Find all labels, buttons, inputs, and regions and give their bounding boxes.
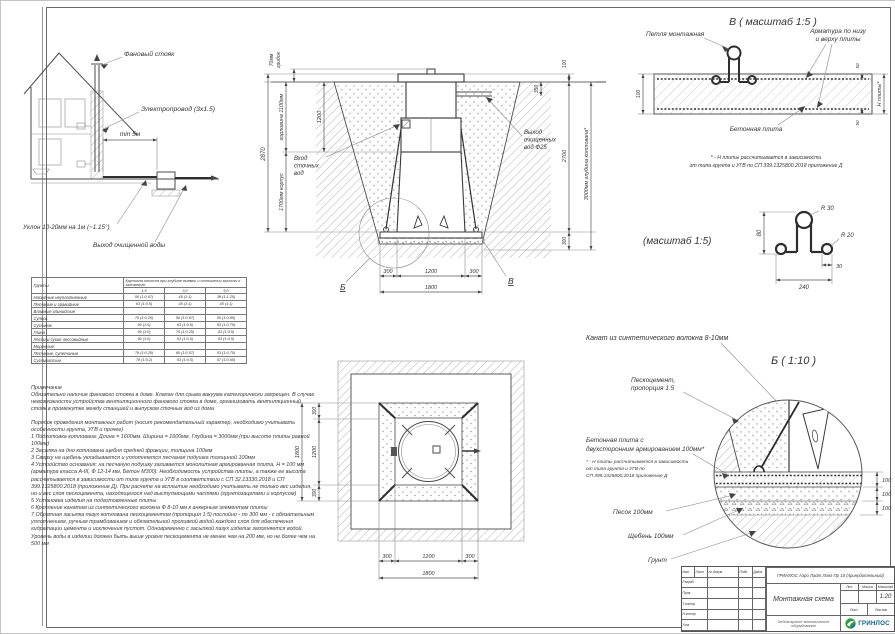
dim-h-slab: Н плиты* [877, 81, 883, 107]
dim-1200pb: 1200 [422, 554, 435, 560]
house-outline [24, 53, 137, 179]
detail-b-content [689, 396, 874, 560]
table-row: Насыпные неуплотненные56 (1:0,67)45 (1:1… [32, 294, 247, 301]
table-row: Моренные: [32, 343, 247, 350]
table-row: Лессы и сухие лессовидные90 (1:0)63 (1:0… [32, 336, 247, 343]
plan-pit [338, 361, 524, 541]
dim-300br: 300 [469, 269, 479, 275]
dim-1800b: 1800 [425, 285, 438, 291]
slab-label-1: Бетонная плита с [586, 437, 644, 444]
marker-b: Б [340, 282, 346, 292]
notes-title: Примечание [31, 385, 317, 392]
tb-sheet: Лист [840, 603, 867, 615]
slab-label: Бетонная плита [730, 126, 783, 133]
tb-mass-header: Масса [858, 583, 876, 590]
tb-h-date: Дата [753, 567, 766, 578]
brand-logo: ГРИНЛОС [840, 615, 894, 631]
detail-b-note-3: СП 399.1325800.2018 приложение Д [586, 473, 668, 479]
detail-loop-profile: (масштаб 1:5) 80 240 30 R 30 R 20 [631, 196, 894, 321]
dim-neck: горловина 1100мм [279, 93, 285, 140]
company-tagline: Чебоксарское экологическое оборудование [766, 615, 840, 631]
dim-300pb2: 300 [465, 554, 475, 560]
tb-h-izm: Изм. [682, 567, 695, 578]
document-title: Монтажная схема [766, 583, 840, 615]
dim-pit-depth: 3000мм глубина котлована* [584, 127, 590, 200]
tb-mass-value [858, 590, 876, 603]
dim-350: 350 [534, 85, 540, 94]
table-row: Суглинок90 (1:0)63 (1:0,5)53 (1:0,75) [32, 322, 247, 329]
grinlos-logo-icon [845, 618, 856, 629]
loop-label: Петля монтажная [646, 31, 705, 38]
gravel-label: Щебень 100мм [628, 532, 674, 540]
dim-body: 1700мм корпус [279, 173, 285, 211]
tb-h-sign: Подп. [739, 567, 753, 578]
detail-v-note-1: * - Н плиты рассчитывается в зависимости [711, 155, 822, 161]
scale-value: 1:20 [876, 590, 894, 603]
tb-lit-value [840, 590, 858, 603]
install-step: 1 Подготовка котлована: Длина = 1600мм. … [31, 434, 317, 448]
detail-b-note-2: от типа грунта и УГВ по [586, 466, 645, 472]
table-row: Глина90 (1:0)76 (1:0,25)63 (1:0,5) [32, 329, 247, 336]
svg-text:вод Ф25: вод Ф25 [524, 145, 547, 151]
dim-cap-2: грибок [276, 51, 282, 68]
detail-b-title: Б ( 1:10 ) [771, 355, 816, 367]
vent-arrow [94, 54, 100, 61]
detail-v-slab [654, 74, 872, 114]
tb-lit-header: Лит. [840, 583, 858, 590]
col-soil-header: Грунты [32, 278, 124, 294]
flow-arrow [211, 175, 218, 180]
soil-label: Грунт [648, 557, 667, 564]
install-step: 7 Обратная засыпка пазух котлована песко… [31, 512, 317, 548]
house-side-view: min 5м Фановый стояк Электропровод (3х1.… [19, 39, 254, 264]
vent-riser-shaft [77, 54, 103, 179]
notes-paragraph: Обязательно наличие фанового стояка в до… [31, 392, 317, 413]
cross-section-view: Б В Вход сточных вод Выход очищенных вод… [256, 36, 621, 328]
tb-h-doc: № докум. [708, 567, 739, 578]
dim-100-dv: 100 [636, 90, 642, 99]
table-row: Песчаные и гравийные63 (1:0,5)45 (1:1)45… [32, 301, 247, 308]
table-row: Супесь76 (1:0,25)56 (1:0,67)50 (1:0,85) [32, 315, 247, 322]
electric-wire-label: Электропровод (3х1.5) [141, 105, 215, 113]
dim-300r: 300 [562, 237, 568, 246]
detail-b-right-dims: 100 100 100 [860, 472, 892, 515]
house-labels: Фановый стояк Электропровод (3х1.5) Укло… [22, 50, 215, 249]
clean-water-out-label: Выход очищенной воды [93, 241, 165, 249]
sandcement-label-2: пропорция 1:5 [631, 385, 675, 392]
fan-riser-label: Фановый стояк [124, 50, 175, 58]
notes-block: Примечание Обязательно наличие фанового … [31, 385, 317, 548]
soil-slope-table: Грунты Крутизна откосов при глубине выем… [31, 277, 247, 364]
dim-50b: 50 [855, 120, 860, 126]
brand-name: ГРИНЛОС [858, 620, 890, 627]
detail-p-title: (масштаб 1:5) [643, 235, 711, 247]
dim-300pb1: 300 [382, 554, 392, 560]
col-slope-header: Крутизна откосов при глубине выемки и от… [124, 278, 247, 288]
detail-v: В ( масштаб 1:5 ) Петля монтажная Армату… [626, 9, 894, 196]
table-row: Влажные глинистые [32, 308, 247, 315]
tb-row-razrab: Разраб. [682, 578, 708, 589]
detail-v-title: В ( масштаб 1:5 ) [729, 16, 817, 28]
dim-2700: 2700 [562, 149, 568, 163]
svg-text:вод: вод [294, 171, 304, 177]
table-header-row: Грунты Крутизна откосов при глубине выем… [32, 278, 247, 288]
sand-label: Песок 100мм [613, 509, 653, 516]
tb-sheets: Листов [867, 603, 894, 615]
title-block-revision-grid: Изм. Лист № докум. Подп. Дата Разраб. Пр… [682, 567, 766, 631]
dim-100-b3: 100 [882, 506, 892, 512]
plan-view: 300 1200 300 1800 300 1200 300 1800 [281, 346, 601, 614]
rebar-label-2: и верху плиты [815, 36, 860, 43]
slope-label: Уклон 10-20мм на 1м (~1.15°) [22, 223, 110, 231]
loop-profile-dims: 80 240 30 R 30 R 20 [757, 206, 854, 291]
dim-cap-1: 70мм [269, 53, 275, 66]
dim-1800pb: 1800 [422, 571, 435, 577]
detail-v-note-2: от типа грунта и УГВ по СП 399.1325800.2… [689, 163, 842, 169]
product-name: ГРИНЛОС Аэро Лайт Лонг Пр 10 (принудител… [766, 567, 894, 583]
loop-profile-shape [776, 212, 832, 254]
dim-100-top: 100 [562, 60, 568, 69]
tb-row-nkontr: Н.контр. [682, 610, 708, 621]
slab-label-2: двухсторонним армированием 100мм* [586, 445, 705, 453]
dim-1200b: 1200 [425, 269, 438, 275]
tb-h-list: Лист [695, 567, 708, 578]
dim-min5-label: min 5м [120, 131, 141, 138]
dim-2870: 2870 [261, 147, 267, 162]
rope-label: Канат из синтетического волокна 8-10мм [586, 335, 728, 342]
tb-row-prov: Пров. [682, 588, 708, 599]
svg-text:Вход: Вход [294, 156, 308, 162]
dim-240: 240 [798, 285, 810, 291]
tb-row-utv: Утв. [682, 620, 708, 631]
dim-50a: 50 [855, 63, 860, 69]
dim-r30: R 30 [821, 206, 834, 212]
dim-80: 80 [757, 229, 763, 236]
dim-100-b1: 100 [882, 478, 892, 484]
svg-text:очищенных: очищенных [524, 138, 557, 144]
dim-1200v: 1200 [317, 110, 323, 123]
outlet-piping [31, 172, 219, 196]
install-step: 5 Установка изделия на подготовленные пл… [31, 498, 317, 505]
install-order-intro: Порядок проведения монтажных работ (носи… [31, 420, 317, 434]
drawing-sheet: min 5м Фановый стояк Электропровод (3х1.… [0, 0, 895, 634]
detail-b-note-1: * - Н плиты рассчитывается в зависимости [586, 459, 689, 465]
svg-text:сточных: сточных [294, 164, 320, 170]
dim-100-b2: 100 [882, 492, 892, 498]
marker-v: В [508, 276, 514, 286]
sandcement-label-1: Пескоцемент, [631, 377, 675, 384]
dim-r20: R 20 [841, 233, 854, 239]
table-row: Суглинистые78 (1:0,2)63 (1:0,5)57 (1:0,6… [32, 357, 247, 364]
title-block: Изм. Лист № докум. Подп. Дата Разраб. Пр… [681, 566, 895, 632]
table-row: Песчаные, супесчаные76 (1:0,25)60 (1:0,5… [32, 350, 247, 357]
svg-text:Выход: Выход [524, 130, 543, 136]
dim-30: 30 [836, 264, 843, 270]
house-dim-min5: min 5м [103, 131, 157, 172]
rebar-label-1: Арматура по низу [809, 28, 867, 35]
install-step: 4 Устройство основания: на песчаную поду… [31, 462, 317, 498]
dim-300bl: 300 [383, 269, 393, 275]
tb-scale-header: Масштаб [876, 583, 894, 590]
tb-row-tkontr: Т.контр. [682, 599, 708, 610]
